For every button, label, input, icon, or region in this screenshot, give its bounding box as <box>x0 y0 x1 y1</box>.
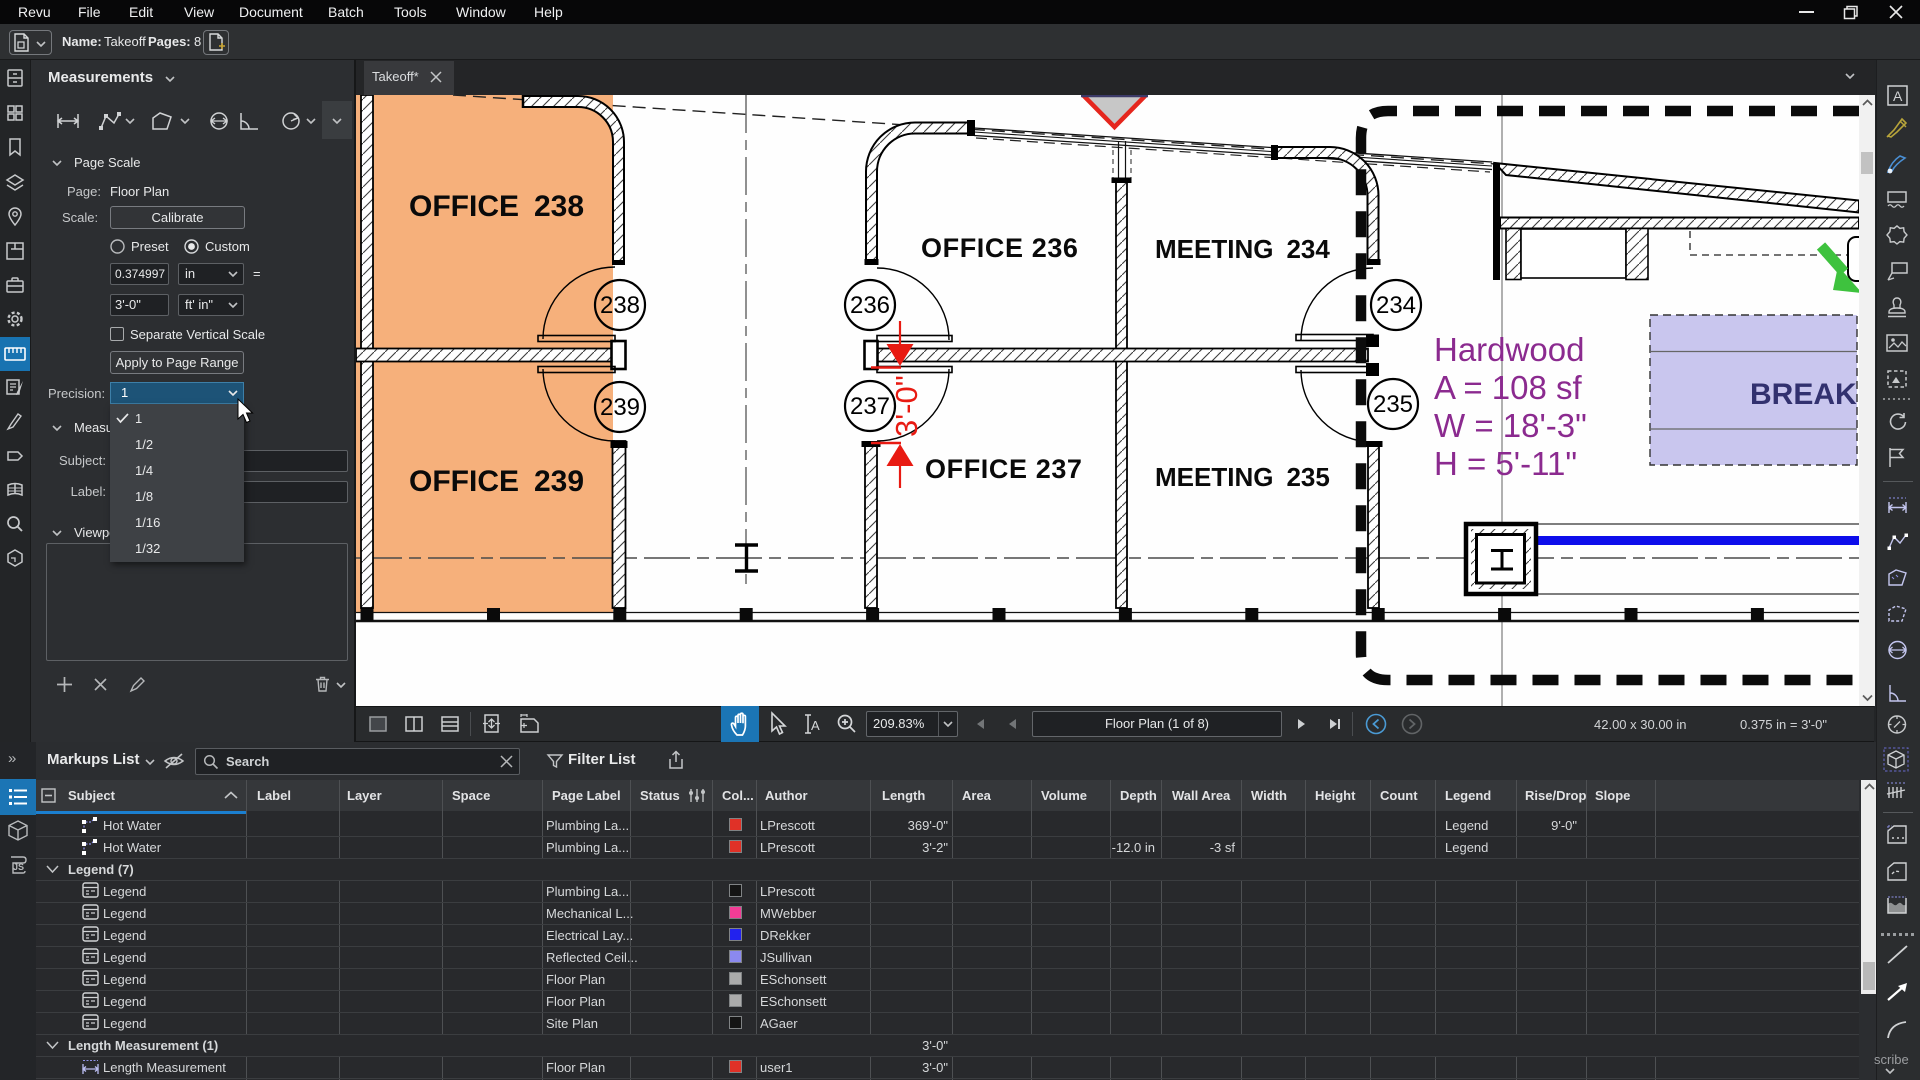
svg-text:235: 235 <box>1373 391 1413 418</box>
svg-text:239: 239 <box>600 394 640 421</box>
svg-text:BREAK: BREAK <box>1750 378 1857 411</box>
svg-text:JS: JS <box>13 862 24 872</box>
svg-text:3'-0": 3'-0" <box>889 375 924 437</box>
svg-text:MEETING 235: MEETING 235 <box>1155 462 1330 492</box>
svg-text:MEETING 234: MEETING 234 <box>1155 234 1330 264</box>
svg-text:236: 236 <box>850 292 890 319</box>
svg-text:A: A <box>811 718 820 733</box>
svg-text:A = 108 sf: A = 108 sf <box>1434 369 1583 406</box>
svg-text:234: 234 <box>1376 292 1416 319</box>
svg-text:W = 18'-3": W = 18'-3" <box>1434 407 1587 444</box>
svg-text:OFFICE 237: OFFICE 237 <box>925 454 1083 484</box>
svg-text:H = 5'-11": H = 5'-11" <box>1434 445 1577 482</box>
svg-text:OFFICE 238: OFFICE 238 <box>409 190 584 223</box>
svg-text:237: 237 <box>850 393 890 420</box>
svg-text:OFFICE 239: OFFICE 239 <box>409 465 584 498</box>
svg-text:A: A <box>1893 88 1903 104</box>
svg-text:Hardwood: Hardwood <box>1434 331 1584 368</box>
svg-text:238: 238 <box>600 292 640 319</box>
svg-text:OFFICE 236: OFFICE 236 <box>921 233 1079 263</box>
